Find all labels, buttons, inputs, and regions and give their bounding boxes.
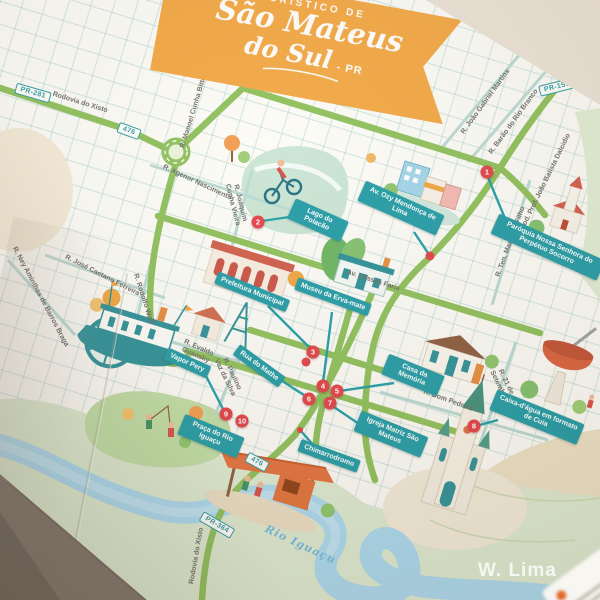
map-marker-m3: 3 (307, 346, 320, 359)
watermark: W. Lima (478, 560, 557, 582)
sand-area (0, 128, 73, 252)
map-marker-m2: 2 (252, 216, 265, 229)
banner-region: - PR (336, 61, 364, 78)
poi-dot (302, 358, 311, 367)
poi-dot (426, 252, 435, 261)
photo-of-tourist-map: TURÍSTICO DE São Mateus do Sul - PR Rio … (0, 0, 600, 600)
map-marker-m10: 10 (236, 415, 249, 428)
card-logo-dot (554, 588, 568, 600)
map-marker-m1: 1 (481, 166, 494, 179)
map-marker-m9: 9 (220, 408, 233, 421)
map-marker-m4: 4 (317, 380, 330, 393)
poi-dot (297, 427, 303, 433)
map-marker-m6: 6 (303, 393, 316, 406)
map-marker-m7: 7 (324, 397, 337, 410)
lattice-tower-house-illustration (187, 288, 258, 350)
map-marker-m8: 8 (468, 420, 481, 433)
map-paper: TURÍSTICO DE São Mateus do Sul - PR Rio … (0, 0, 600, 600)
map-marker-m5: 5 (331, 385, 344, 398)
card-text-line (565, 568, 600, 600)
